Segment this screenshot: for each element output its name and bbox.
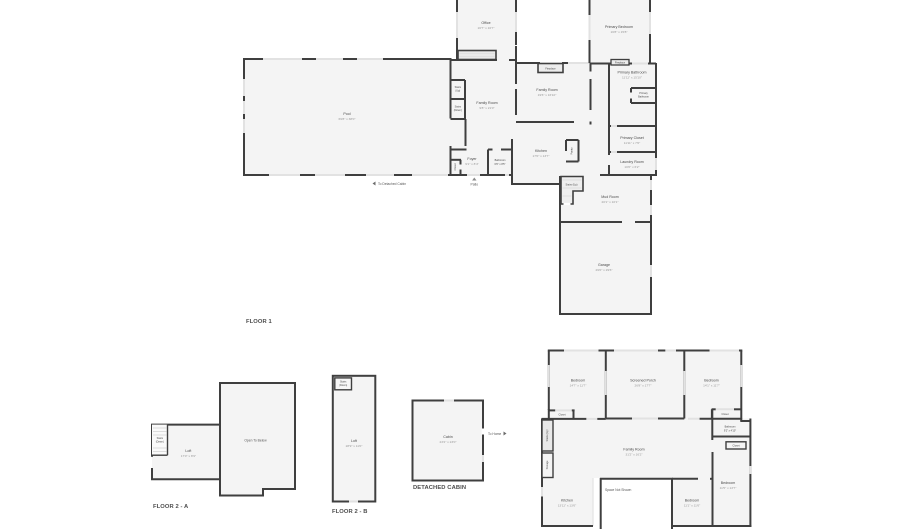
- svg-text:FLOOR 2 - A: FLOOR 2 - A: [153, 504, 189, 510]
- svg-text:Mud Room: Mud Room: [601, 195, 619, 199]
- svg-text:Cabin: Cabin: [443, 435, 452, 439]
- svg-text:14'7" x 11'7": 14'7" x 11'7": [570, 384, 587, 388]
- svg-text:26'8" x 17'7": 26'8" x 17'7": [635, 384, 652, 388]
- svg-text:Space Not Shown: Space Not Shown: [605, 488, 632, 492]
- svg-text:Garage: Garage: [598, 263, 610, 267]
- svg-text:(Down): (Down): [339, 384, 347, 387]
- svg-text:Closet: Closet: [721, 413, 728, 416]
- svg-text:Closet: Closet: [454, 163, 457, 170]
- svg-text:To Home: To Home: [488, 432, 501, 436]
- svg-text:9'8" x 21'0": 9'8" x 21'0": [479, 106, 494, 110]
- svg-text:Fireplace: Fireplace: [615, 61, 626, 64]
- svg-text:6'6" x 8'5": 6'6" x 8'5": [495, 163, 506, 166]
- svg-text:(Down): (Down): [156, 441, 164, 444]
- svg-text:31'2" x 16'2": 31'2" x 16'2": [626, 453, 643, 457]
- svg-text:FLOOR 1: FLOOR 1: [246, 319, 272, 325]
- svg-text:23'2" x 23'0": 23'2" x 23'0": [440, 440, 457, 444]
- svg-text:11'11" x 15'10": 11'11" x 15'10": [622, 76, 642, 80]
- svg-text:FLOOR 2 - B: FLOOR 2 - B: [332, 509, 368, 515]
- svg-text:14'1" x 11'7": 14'1" x 11'7": [703, 384, 720, 388]
- svg-text:Bathroom: Bathroom: [725, 426, 736, 429]
- svg-text:Stairs (Up): Stairs (Up): [566, 183, 578, 186]
- svg-text:Family Room: Family Room: [623, 448, 644, 452]
- svg-text:Pool: Pool: [343, 112, 350, 116]
- svg-text:Bedroom: Bedroom: [685, 499, 700, 503]
- svg-text:17'0" x 13'7": 17'0" x 13'7": [533, 154, 550, 158]
- svg-text:Family Room: Family Room: [536, 88, 557, 92]
- svg-text:Bedroom: Bedroom: [721, 481, 736, 485]
- svg-text:Bathroom: Bathroom: [638, 96, 649, 99]
- svg-text:Loft: Loft: [185, 449, 191, 453]
- svg-text:Kitchen: Kitchen: [535, 149, 547, 153]
- svg-text:Bedroom: Bedroom: [571, 379, 586, 383]
- svg-text:Stairs (Up): Stairs (Up): [546, 429, 549, 441]
- svg-text:28'9" x 11'0": 28'9" x 11'0": [346, 444, 363, 448]
- svg-text:Primary Bathroom: Primary Bathroom: [618, 71, 647, 75]
- svg-text:Pantry: Pantry: [571, 147, 574, 155]
- svg-text:Patio: Patio: [471, 183, 479, 187]
- svg-text:(Down): (Down): [454, 109, 462, 112]
- svg-text:Loft: Loft: [351, 439, 357, 443]
- svg-text:Foyer: Foyer: [467, 157, 477, 161]
- svg-text:Open To Below: Open To Below: [244, 439, 267, 443]
- svg-text:DETACHED CABIN: DETACHED CABIN: [413, 485, 466, 491]
- svg-text:Fireplace: Fireplace: [545, 67, 556, 70]
- svg-text:16'7" x 16'7": 16'7" x 16'7": [478, 26, 495, 30]
- svg-text:16'8" x 15'8": 16'8" x 15'8": [611, 30, 628, 34]
- svg-text:Closet: Closet: [558, 414, 565, 417]
- svg-text:9'1" x 8'4": 9'1" x 8'4": [465, 162, 479, 166]
- svg-text:Primary Bedroom: Primary Bedroom: [605, 25, 633, 29]
- svg-text:19'6" x 16'10": 19'6" x 16'10": [538, 93, 557, 97]
- svg-text:11'1" x 11'6": 11'1" x 11'6": [684, 504, 701, 508]
- svg-text:9'2" x 4'10": 9'2" x 4'10": [724, 430, 736, 433]
- svg-text:11'11" x 7'6": 11'11" x 7'6": [624, 141, 641, 145]
- svg-text:Screened Porch: Screened Porch: [630, 379, 656, 383]
- svg-text:20'1" x 10'1": 20'1" x 10'1": [602, 200, 619, 204]
- svg-text:17'0" x 8'9": 17'0" x 8'9": [181, 454, 196, 458]
- svg-text:Bathroom: Bathroom: [495, 159, 506, 162]
- svg-text:29'0" x 29'6": 29'0" x 29'6": [596, 268, 613, 272]
- svg-text:11'5" x 13'7": 11'5" x 13'7": [720, 486, 737, 490]
- svg-text:Closet: Closet: [732, 445, 739, 448]
- svg-text:Kitchen: Kitchen: [561, 499, 573, 503]
- svg-text:Family Room: Family Room: [476, 101, 497, 105]
- svg-text:Bedroom: Bedroom: [704, 379, 719, 383]
- svg-text:Primary Closet: Primary Closet: [620, 136, 644, 140]
- svg-text:69'8" x 38'0": 69'8" x 38'0": [339, 117, 356, 121]
- svg-text:Storage: Storage: [546, 460, 549, 469]
- svg-text:Office: Office: [481, 21, 490, 25]
- svg-text:To Detached Cabin: To Detached Cabin: [378, 182, 406, 186]
- svg-text:Laundry Room: Laundry Room: [620, 160, 644, 164]
- svg-text:13'11" x 13'6": 13'11" x 13'6": [558, 504, 576, 508]
- svg-text:10'0" x 6'2": 10'0" x 6'2": [624, 165, 639, 169]
- svg-text:(Up): (Up): [455, 90, 460, 93]
